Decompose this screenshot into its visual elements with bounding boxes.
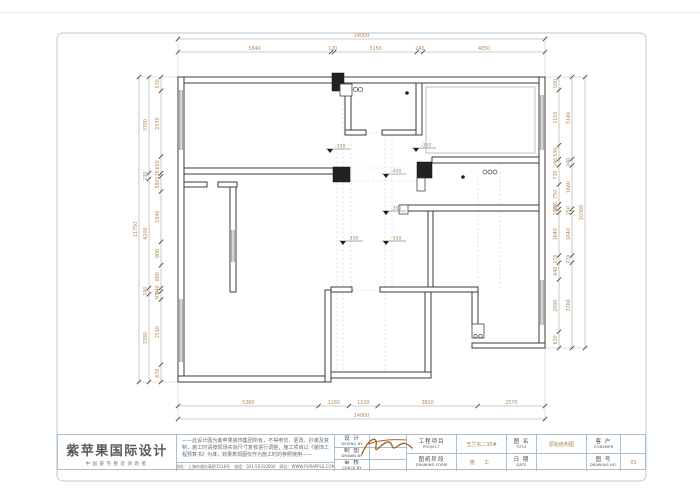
svg-text:270: 270 (553, 255, 559, 264)
svg-text:530: 530 (155, 79, 161, 88)
svg-text:5360: 5360 (242, 400, 254, 406)
svg-text:240: 240 (553, 158, 559, 167)
svg-text:1100: 1100 (357, 400, 369, 406)
svg-text:-350: -350 (391, 236, 402, 242)
svg-text:640: 640 (553, 267, 559, 276)
svg-text:230: 230 (143, 171, 149, 180)
column-center-right (417, 162, 432, 178)
stage-value: 施 工 (456, 453, 506, 471)
svg-text:150: 150 (566, 206, 572, 215)
dimension-chain-top-inner: 584012031502404650 (176, 46, 547, 54)
svg-text:620: 620 (553, 335, 559, 344)
svg-text:4650: 4650 (478, 46, 490, 52)
gas-valves (483, 170, 497, 174)
disclaimer-text: ——此设计图为紫苹果装饰集团所有，不得参仿、更改、抄袭及复制，施工时请按现场实际… (177, 435, 334, 459)
dimension-chain-top-total: 14000 (176, 33, 547, 41)
svg-text:500: 500 (553, 79, 559, 88)
dimension-chain-right-inner: 5002110530240730750180150164027064020006… (553, 75, 561, 350)
svg-text:5840: 5840 (248, 46, 260, 52)
svg-text:-350: -350 (391, 206, 402, 212)
drawn-by-cell (369, 447, 406, 459)
svg-text:1640: 1640 (566, 228, 572, 240)
svg-text:2000: 2000 (553, 300, 559, 312)
check-by-cell (369, 459, 406, 471)
level-marker-2: -350 (412, 143, 436, 153)
date-value-empty (536, 453, 586, 471)
level-marker-6: -350 (382, 236, 406, 246)
walls-group (178, 77, 545, 382)
svg-text:-350: -350 (348, 236, 359, 242)
dimension-chain-bottom-total: 14000 (176, 413, 547, 421)
svg-text:-350: -350 (335, 144, 346, 150)
dimension-chain-left-outer: 11750 (133, 75, 141, 384)
dimension-chain-left-inner: 530253065012058019409008801403002510670 (155, 75, 163, 384)
level-marker-5: -350 (339, 236, 363, 246)
ceiling-point-2 (461, 175, 465, 179)
svg-text:3380: 3380 (143, 332, 149, 344)
svg-text:120: 120 (155, 170, 161, 179)
svg-text:2510: 2510 (155, 326, 161, 338)
svg-text:120: 120 (328, 46, 337, 52)
svg-text:14000: 14000 (354, 33, 369, 39)
extension-lines (137, 36, 588, 421)
drawing-no-value: 01 (620, 453, 646, 471)
column-center-left (333, 167, 350, 182)
svg-text:880: 880 (155, 272, 161, 281)
meter-box-top (340, 84, 363, 96)
room-inner-line (426, 87, 535, 153)
svg-text:3260: 3260 (566, 299, 572, 311)
svg-text:240: 240 (415, 46, 424, 52)
svg-text:270: 270 (566, 255, 572, 264)
svg-text:1660: 1660 (566, 181, 572, 193)
svg-text:670: 670 (155, 369, 161, 378)
title-block: 紫苹果国际设计 中国豪宅整装领跑者 ——此设计图为紫苹果装饰集团所有，不得参仿、… (57, 434, 646, 470)
field-date: 日 期DATE (506, 453, 536, 471)
svg-text:10360: 10360 (579, 205, 585, 220)
svg-text:300: 300 (155, 291, 161, 300)
svg-text:2530: 2530 (155, 117, 161, 129)
svg-text:730: 730 (553, 170, 559, 179)
field-check: 审 核CHECK BY (334, 459, 369, 471)
svg-text:-400: -400 (391, 169, 402, 175)
drawing-sheet-page: { "plan": { "dims": { "top_total": [1400… (0, 0, 700, 495)
svg-text:14000: 14000 (354, 413, 369, 419)
svg-text:3140: 3140 (566, 112, 572, 124)
svg-text:3150: 3150 (369, 46, 381, 52)
field-title: 图 名TITLE (506, 435, 536, 453)
level-marker-3: -400 (382, 169, 406, 179)
level-marker-1: -350 (326, 144, 350, 154)
svg-text:150: 150 (553, 206, 559, 215)
svg-text:530: 530 (553, 148, 559, 157)
svg-text:240: 240 (143, 287, 149, 296)
dimension-chain-right-middle: 3140240166015016402703260 (566, 75, 574, 350)
svg-text:2110: 2110 (553, 112, 559, 124)
field-project: 工程项目PROJECT (406, 435, 456, 453)
svg-text:900: 900 (155, 249, 161, 258)
field-drawing-no: 图 号DRAWING NO. (586, 453, 620, 471)
svg-text:580: 580 (155, 179, 161, 188)
svg-text:1160: 1160 (328, 400, 340, 406)
meter-box-bottom (472, 324, 484, 338)
svg-text:750: 750 (553, 190, 559, 199)
ceiling-point-1 (405, 91, 409, 95)
svg-text:3810: 3810 (422, 400, 434, 406)
design-by-cell (369, 435, 406, 447)
duct-box (417, 178, 425, 191)
svg-text:3700: 3700 (143, 119, 149, 131)
title-value: 原始结构图 (536, 435, 586, 453)
field-drawn: 制 图DRAWN BY (334, 447, 369, 459)
dimension-chain-bottom-inner: 53601160110038102570 (176, 400, 547, 408)
address-line: 地址：上海市浦东高桥1518号 电话：021-50310000 网址：WWW.P… (176, 462, 334, 471)
floor-plan-canvas: 14000 584012031502404650 536011601100381… (0, 0, 700, 495)
svg-text:240: 240 (566, 158, 572, 167)
svg-text:1940: 1940 (155, 211, 161, 223)
company-name: 紫苹果国际设计 (66, 440, 168, 459)
field-stage: 图纸阶段DRAWING FORM (406, 453, 456, 471)
svg-text:1640: 1640 (553, 228, 559, 240)
svg-text:650: 650 (155, 160, 161, 169)
disclaimer-cell: ——此设计图为紫苹果装饰集团所有，不得参仿、更改、抄袭及复制，施工时请按现场实际… (176, 435, 334, 462)
svg-text:2570: 2570 (505, 400, 517, 406)
company-block: 紫苹果国际设计 中国豪宅整装领跑者 (58, 435, 176, 471)
svg-text:4200: 4200 (143, 227, 149, 239)
project-value: 玉兰东二30# (456, 435, 506, 453)
customer-value-empty (620, 435, 646, 453)
svg-text:-350: -350 (421, 143, 432, 149)
svg-text:11750: 11750 (133, 222, 139, 237)
dimension-chain-left-middle: 370023042002403380 (143, 75, 151, 384)
company-tagline: 中国豪宅整装领跑者 (86, 461, 149, 467)
dimension-chain-right-outer: 10360 (579, 75, 587, 350)
field-design: 设 计DESING BY (334, 435, 369, 447)
field-customer: 客 户CONSMER (586, 435, 620, 453)
